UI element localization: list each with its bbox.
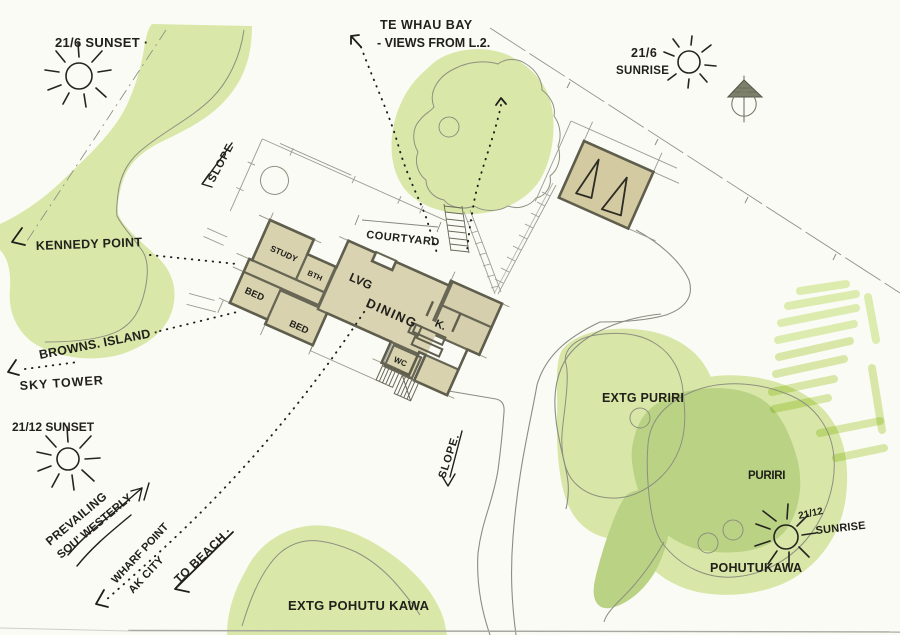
svg-text:21/6 SUNSET ·: 21/6 SUNSET · [55, 35, 148, 50]
svg-text:PURIRI: PURIRI [748, 470, 785, 482]
svg-text:COURTYARD: COURTYARD [366, 229, 441, 249]
svg-text:TE WHAU BAY: TE WHAU BAY [380, 18, 473, 32]
svg-text:EXTG PURIRI: EXTG PURIRI [602, 391, 684, 405]
svg-text:SLOPE.: SLOPE. [436, 432, 462, 480]
svg-text:POHUTUKAWA: POHUTUKAWA [710, 561, 802, 575]
svg-text:TO BEACH ·: TO BEACH · [171, 524, 235, 586]
svg-text:21/6: 21/6 [631, 46, 657, 60]
svg-text:21/12 SUNSET: 21/12 SUNSET [12, 420, 95, 434]
svg-text:- VIEWS FROM L.2.: - VIEWS FROM L.2. [377, 36, 490, 50]
svg-text:SKY TOWER: SKY TOWER [19, 373, 104, 393]
svg-text:EXTG POHUTU KAWA: EXTG POHUTU KAWA [288, 598, 430, 613]
svg-text:SUNRISE: SUNRISE [616, 65, 669, 77]
svg-text:SLOPE: SLOPE [206, 141, 236, 184]
